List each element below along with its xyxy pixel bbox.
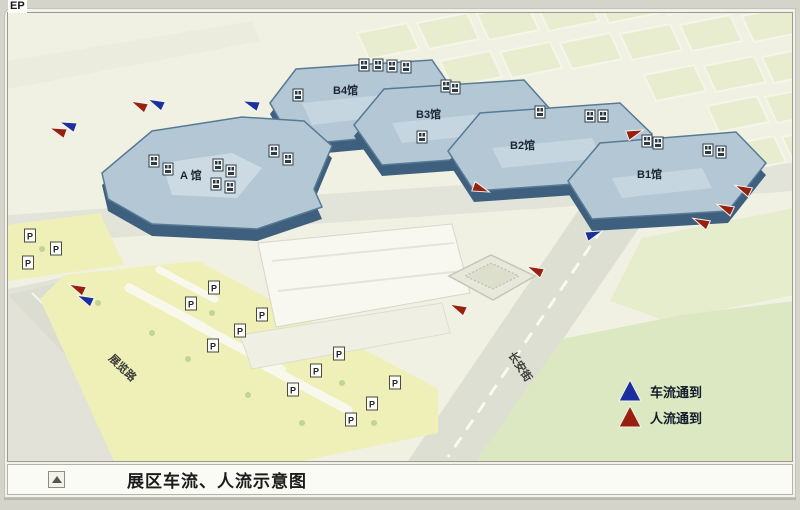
roof-entrance-marker xyxy=(293,89,303,101)
roof-entrance-marker xyxy=(269,145,279,157)
svg-text:P: P xyxy=(27,232,33,242)
parking-marker: P xyxy=(208,339,219,352)
roof-entrance-marker xyxy=(653,137,663,149)
roof-entrance-marker xyxy=(703,144,713,156)
site-map: PPPPPPPPPPPPPP A 馆 B4馆 B3馆 B2馆 B1馆 展览路 长… xyxy=(8,13,792,461)
svg-text:P: P xyxy=(237,327,243,337)
parking-marker: P xyxy=(257,308,268,321)
roof-entrance-marker xyxy=(211,178,221,190)
roof-entrance-marker xyxy=(163,163,173,175)
svg-text:P: P xyxy=(290,386,296,396)
collapse-triangle-icon xyxy=(52,476,62,483)
roof-entrance-marker xyxy=(149,155,159,167)
roof-entrance-marker xyxy=(535,106,545,118)
svg-text:P: P xyxy=(313,367,319,377)
roof-entrance-marker xyxy=(226,165,236,177)
roof-entrance-marker xyxy=(417,131,427,143)
svg-text:P: P xyxy=(25,259,31,269)
legend-vehicle-label: 车流通到 xyxy=(650,385,702,400)
hall-b4-label: B4馆 xyxy=(333,83,358,97)
parking-marker: P xyxy=(51,242,62,255)
svg-text:P: P xyxy=(348,416,354,426)
parking-marker: P xyxy=(23,256,34,269)
svg-text:P: P xyxy=(210,342,216,352)
site-map-panel: PPPPPPPPPPPPPP A 馆 B4馆 B3馆 B2馆 B1馆 展览路 长… xyxy=(7,12,793,462)
roof-entrance-marker xyxy=(373,59,383,71)
parking-marker: P xyxy=(346,413,357,426)
roof-entrance-marker xyxy=(359,59,369,71)
svg-text:P: P xyxy=(211,284,217,294)
hall-b3-label: B3馆 xyxy=(416,107,441,121)
parking-marker: P xyxy=(334,347,345,360)
svg-text:P: P xyxy=(336,350,342,360)
caption-bar: 展区车流、人流示意图 xyxy=(7,464,793,495)
legend-people-label: 人流通到 xyxy=(650,411,702,426)
content-card: PPPPPPPPPPPPPP A 馆 B4馆 B3馆 B2馆 B1馆 展览路 长… xyxy=(4,8,796,498)
svg-text:P: P xyxy=(369,400,375,410)
hall-b2-label: B2馆 xyxy=(510,138,535,152)
roof-entrance-marker xyxy=(450,82,460,94)
corner-label: EP xyxy=(8,0,27,13)
svg-text:P: P xyxy=(259,311,265,321)
parking-marker: P xyxy=(390,376,401,389)
roof-entrance-marker xyxy=(401,61,411,73)
parking-marker: P xyxy=(311,364,322,377)
roof-entrance-marker xyxy=(642,135,652,147)
hall-b1-label: B1馆 xyxy=(637,167,662,181)
roof-entrance-marker xyxy=(598,110,608,122)
parking-marker: P xyxy=(25,229,36,242)
screenshot-stage: EP xyxy=(0,0,800,510)
parking-marker: P xyxy=(235,324,246,337)
roof-entrance-marker xyxy=(387,60,397,72)
roof-entrance-marker xyxy=(283,153,293,165)
parking-marker: P xyxy=(367,397,378,410)
map-caption: 展区车流、人流示意图 xyxy=(127,467,307,492)
roof-entrance-marker xyxy=(716,146,726,158)
roof-entrance-marker xyxy=(585,110,595,122)
svg-text:P: P xyxy=(392,379,398,389)
svg-text:P: P xyxy=(53,245,59,255)
parking-marker: P xyxy=(186,297,197,310)
collapse-toggle[interactable] xyxy=(48,471,65,488)
parking-marker: P xyxy=(209,281,220,294)
svg-text:P: P xyxy=(188,300,194,310)
roof-entrance-marker xyxy=(225,181,235,193)
hall-a-label: A 馆 xyxy=(180,168,202,182)
parking-marker: P xyxy=(288,383,299,396)
roof-entrance-marker xyxy=(213,159,223,171)
